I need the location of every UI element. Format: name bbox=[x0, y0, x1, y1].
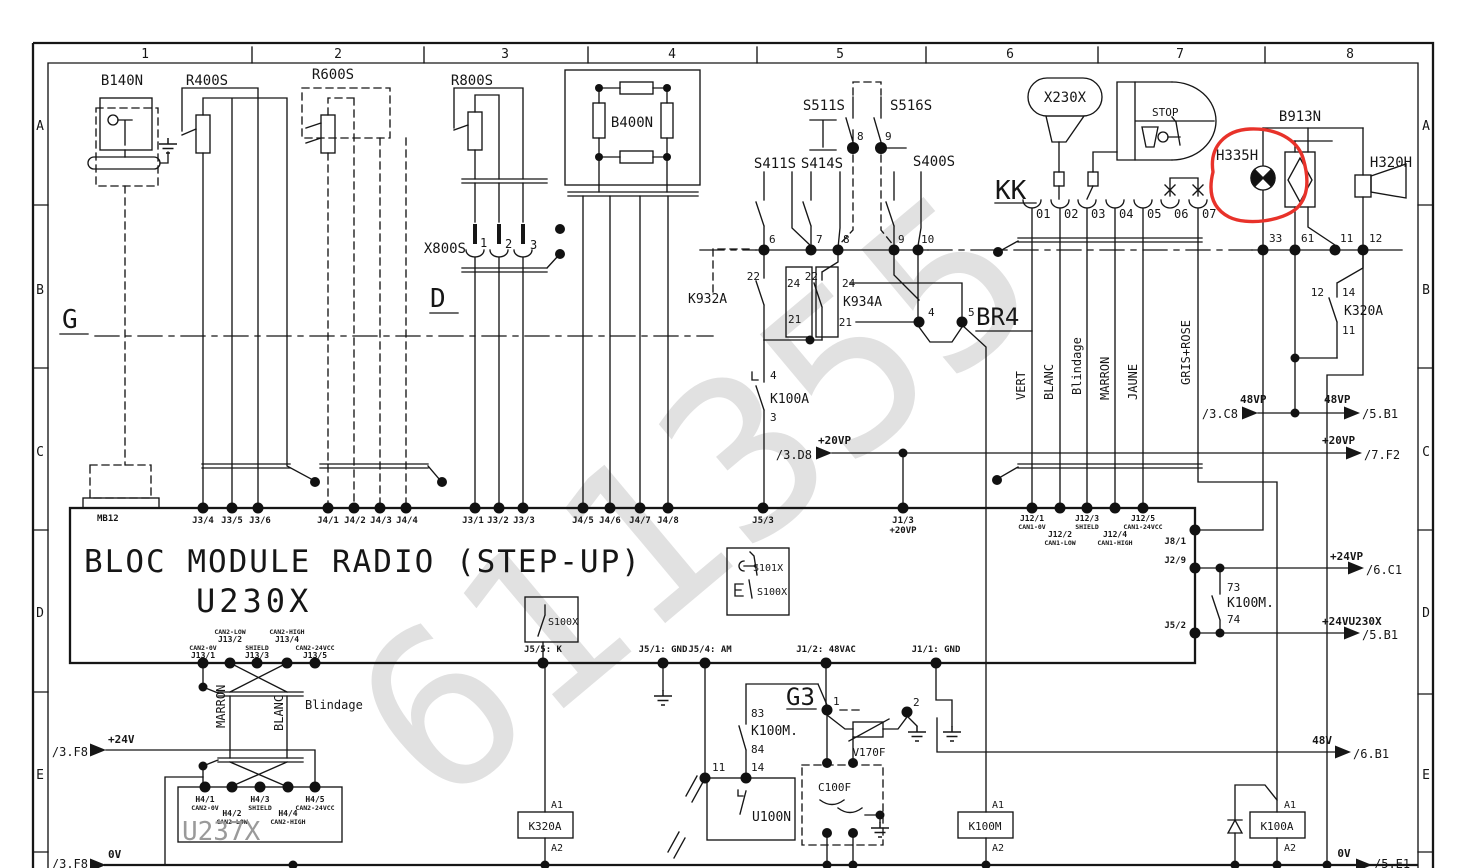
pin-14: 14 bbox=[1342, 286, 1356, 299]
pin-84: 84 bbox=[751, 743, 765, 756]
col-3: 3 bbox=[501, 47, 509, 62]
label-k100m-contact2: K100M. bbox=[751, 724, 798, 739]
pin-11: 11 bbox=[1340, 232, 1353, 245]
label-b140n: B140N bbox=[101, 73, 143, 89]
label-s414s: S414S bbox=[801, 156, 843, 172]
label-u237x: U237X bbox=[182, 817, 261, 847]
pin-j12-2: J12/2 bbox=[1048, 530, 1072, 539]
row-d-right: D bbox=[1422, 606, 1430, 621]
label-c100f: C100F bbox=[818, 781, 851, 794]
col-6: 6 bbox=[1006, 47, 1014, 62]
pin-h4-3-net: SHIELD bbox=[248, 804, 272, 812]
kk-pin-04: 04 bbox=[1119, 207, 1133, 221]
net-3d8: +20VP bbox=[818, 434, 851, 447]
x800s-pin1: 1 bbox=[480, 236, 487, 250]
ref-arrow bbox=[1356, 859, 1372, 868]
label-kk: KK bbox=[995, 176, 1027, 206]
pin-11b: 11 bbox=[1342, 324, 1355, 337]
net-5b1b: +24VU230X bbox=[1322, 615, 1382, 628]
ref-arrow bbox=[1346, 447, 1362, 460]
label-g: G bbox=[62, 305, 78, 335]
wire-jaune: JAUNE bbox=[1126, 364, 1140, 400]
pin-j13-2: J13/2 bbox=[218, 635, 242, 644]
module-ref: U230X bbox=[196, 582, 312, 620]
pin-73: 73 bbox=[1227, 581, 1240, 594]
pin-j5-4: J5/4: AM bbox=[688, 645, 732, 655]
row-d-left: D bbox=[36, 606, 44, 621]
label-k100m-coil: K100M bbox=[968, 820, 1001, 833]
label-br4: BR4 bbox=[976, 303, 1019, 331]
pin-2: 2 bbox=[913, 696, 920, 709]
ref-5b1b: /5.B1 bbox=[1362, 628, 1398, 642]
ref-3c8: /3.C8 bbox=[1202, 407, 1238, 421]
ref-arrow bbox=[1242, 407, 1258, 420]
pin-j12-4-net: CAN1-HIGH bbox=[1097, 539, 1132, 547]
pin-10: 10 bbox=[921, 233, 934, 246]
pin-j5-3: J5/3 bbox=[752, 516, 774, 526]
label-k100a-coil: K100A bbox=[1260, 820, 1293, 833]
pin-6: 6 bbox=[769, 233, 776, 246]
pin-a2b: A2 bbox=[992, 843, 1004, 854]
pin-j4-7: J4/7 bbox=[629, 516, 651, 526]
pin-14b: 14 bbox=[751, 761, 765, 774]
label-r600s: R600S bbox=[312, 67, 354, 83]
pin-7: 7 bbox=[816, 233, 823, 246]
pin-j12-5: J12/5 bbox=[1131, 514, 1155, 523]
pin-j12-4: J12/4 bbox=[1103, 530, 1127, 539]
pin-22a: 22 bbox=[747, 270, 760, 283]
pin-j3-5: J3/5 bbox=[221, 516, 243, 526]
pin-33: 33 bbox=[1269, 232, 1282, 245]
label-x800s: X800S bbox=[424, 241, 466, 257]
wire-blanc: BLANC bbox=[1042, 364, 1056, 400]
pin-21a: 21 bbox=[788, 313, 801, 326]
wiring-diagram: 611355 1 2 3 4 5 6 7 8 A B C D E A B C D… bbox=[0, 0, 1482, 868]
kk-pin-02: 02 bbox=[1064, 207, 1078, 221]
ref-3d8: /3.D8 bbox=[776, 448, 812, 462]
ref-arrow bbox=[1344, 627, 1360, 640]
label-s511s: S511S bbox=[803, 98, 845, 114]
pin-9: 9 bbox=[885, 130, 892, 143]
kk-pin-01: 01 bbox=[1036, 207, 1050, 221]
pin-j12-1: J12/1 bbox=[1020, 514, 1044, 523]
pin-12b: 12 bbox=[1311, 286, 1324, 299]
row-b-left: B bbox=[36, 283, 44, 298]
label-b400n: B400N bbox=[611, 115, 653, 131]
pin-a2a: A2 bbox=[551, 843, 563, 854]
col-7: 7 bbox=[1176, 47, 1184, 62]
pin-12: 12 bbox=[1369, 232, 1382, 245]
pin-j1-1: J1/1: GND bbox=[912, 645, 961, 655]
col-1: 1 bbox=[141, 47, 149, 62]
pin-74: 74 bbox=[1227, 613, 1241, 626]
pin-j4-3: J4/3 bbox=[370, 516, 392, 526]
pin-j12-2-net: CAN1-LOW bbox=[1044, 539, 1075, 547]
pin-j1-3-net: +20VP bbox=[889, 526, 917, 536]
label-r400s: R400S bbox=[186, 73, 228, 89]
label-x230x: X230X bbox=[1044, 90, 1087, 106]
pin-j12-1-net: CAN1-0V bbox=[1018, 523, 1045, 531]
ref-6b1: /6.B1 bbox=[1353, 747, 1389, 761]
label-blindage2: Blindage bbox=[305, 698, 363, 712]
pin-61: 61 bbox=[1301, 232, 1314, 245]
ground-icon bbox=[159, 138, 177, 153]
pin-j3-2: J3/2 bbox=[487, 516, 509, 526]
pin-a1c: A1 bbox=[1284, 800, 1296, 811]
ref-arrow bbox=[90, 859, 106, 868]
pin-24b: 24 bbox=[842, 277, 856, 290]
label-s411s: S411S bbox=[754, 156, 796, 172]
net-5b1: 48VP bbox=[1324, 393, 1351, 406]
kk-pin-03: 03 bbox=[1091, 207, 1105, 221]
kk-pin-05: 05 bbox=[1147, 207, 1161, 221]
pin-j1-2: J1/2: 48VAC bbox=[796, 645, 856, 655]
label-mb12: MB12 bbox=[97, 514, 119, 524]
stop-display bbox=[1087, 82, 1216, 199]
pin-5: 5 bbox=[968, 306, 975, 319]
x800s-pin3: 3 bbox=[530, 238, 537, 252]
ref-6c1: /6.C1 bbox=[1366, 563, 1402, 577]
ref-arrow bbox=[1344, 407, 1360, 420]
label-g3: G3 bbox=[786, 683, 815, 711]
pin-h4-1-net: CAN2-0V bbox=[191, 804, 218, 812]
row-c-right: C bbox=[1422, 445, 1430, 460]
wire-blindage: Blindage bbox=[1070, 337, 1084, 395]
pin-j12-3-net: SHIELD bbox=[1075, 523, 1099, 531]
label-k932a: K932A bbox=[688, 292, 727, 307]
label-k320a-contact: K320A bbox=[1344, 304, 1383, 319]
ground-icon bbox=[943, 726, 961, 741]
wire-gris-rose: GRIS+ROSE bbox=[1179, 320, 1193, 385]
label-k320a-coil: K320A bbox=[528, 820, 561, 833]
label-h335h: H335H bbox=[1216, 148, 1258, 164]
pin-j1-3: J1/3 bbox=[892, 516, 914, 526]
wire-marron: MARRON bbox=[1098, 357, 1112, 400]
label-u100n: U100N bbox=[752, 810, 791, 825]
label-s516s: S516S bbox=[890, 98, 932, 114]
net-3f8: +24V bbox=[108, 733, 135, 746]
label-s100x: S100X bbox=[757, 587, 787, 598]
pin-j4-4: J4/4 bbox=[396, 516, 418, 526]
ref-arrow bbox=[1348, 562, 1364, 575]
pin-j8-1: J8/1 bbox=[1164, 537, 1186, 547]
b140n-sensor bbox=[88, 98, 168, 465]
ref-3f8: /3.F8 bbox=[52, 745, 88, 759]
pin-j3-6: J3/6 bbox=[249, 516, 271, 526]
pin-h4-5-net: CAN2-24VCC bbox=[295, 804, 334, 812]
pin-h4-4-net: CAN2-HIGH bbox=[270, 818, 305, 826]
pin-83: 83 bbox=[751, 707, 764, 720]
kk-pin-07: 07 bbox=[1202, 207, 1216, 221]
pin-a2c: A2 bbox=[1284, 843, 1296, 854]
ref-7f2: /7.F2 bbox=[1364, 448, 1400, 462]
pin-j12-5-net: CAN1-24VCC bbox=[1123, 523, 1162, 531]
pin-3a: 3 bbox=[770, 411, 777, 424]
pin-j4-5: J4/5 bbox=[572, 516, 594, 526]
pin-11c: 11 bbox=[712, 761, 725, 774]
wire-vert: VERT bbox=[1014, 371, 1028, 400]
ref-5b1: /5.B1 bbox=[1362, 407, 1398, 421]
label-v170f: V170F bbox=[852, 746, 885, 759]
row-e-left: E bbox=[36, 768, 44, 783]
net-3c8: 48VP bbox=[1240, 393, 1267, 406]
wire-blanc2: BLANC bbox=[272, 695, 286, 731]
label-stop: STOP bbox=[1152, 106, 1179, 119]
col-4: 4 bbox=[668, 47, 676, 62]
pin-j4-8: J4/8 bbox=[657, 516, 679, 526]
ref-3f8b: /3.F8 bbox=[52, 857, 88, 868]
label-s101x: S101X bbox=[753, 563, 783, 574]
pin-h4-1: H4/1 bbox=[195, 795, 214, 804]
pin-j4-2: J4/2 bbox=[344, 516, 366, 526]
pin-j13-1: J13/1 bbox=[191, 651, 215, 660]
g-line bbox=[60, 313, 713, 336]
pin-a1a: A1 bbox=[551, 800, 563, 811]
label-r800s: R800S bbox=[451, 73, 493, 89]
col-8: 8 bbox=[1346, 47, 1354, 62]
net-6b1: 48V bbox=[1312, 734, 1332, 747]
schematic-page: 611355 1 2 3 4 5 6 7 8 A B C D E A B C D… bbox=[0, 0, 1482, 868]
pin-22b: 22 bbox=[805, 270, 818, 283]
row-a-right: A bbox=[1422, 119, 1430, 134]
pin-h4-3: H4/3 bbox=[250, 795, 269, 804]
pin-j12-3: J12/3 bbox=[1075, 514, 1099, 523]
pin-j5-2: J5/2 bbox=[1164, 621, 1186, 631]
net-7f2: +20VP bbox=[1322, 434, 1355, 447]
col-2: 2 bbox=[334, 47, 342, 62]
net-6c1: +24VP bbox=[1330, 550, 1363, 563]
pin-9b: 9 bbox=[898, 233, 905, 246]
pin-j4-6: J4/6 bbox=[599, 516, 621, 526]
label-d: D bbox=[430, 284, 446, 314]
label-s400s: S400S bbox=[913, 154, 955, 170]
pin-j5-5: J5/5: K bbox=[524, 645, 563, 655]
pin-j13-3: J13/3 bbox=[245, 651, 269, 660]
module-title: BLOC MODULE RADIO (STEP-UP) bbox=[84, 544, 642, 580]
pin-h4-5: H4/5 bbox=[305, 795, 324, 804]
pin-1: 1 bbox=[833, 695, 840, 708]
pin-j4-1: J4/1 bbox=[317, 516, 339, 526]
ref-5e1: /5.E1 bbox=[1374, 857, 1410, 868]
label-k100m-contact: K100M. bbox=[1227, 596, 1274, 611]
pin-8b: 8 bbox=[843, 233, 850, 246]
row-e-right: E bbox=[1422, 768, 1430, 783]
wire-marron2: MARRON bbox=[214, 685, 228, 728]
pin-j13-4: J13/4 bbox=[275, 635, 299, 644]
kk-connector bbox=[995, 178, 1277, 812]
pin-24a: 24 bbox=[787, 277, 801, 290]
pin-j13-5: J13/5 bbox=[303, 651, 327, 660]
r600s-potentiometer bbox=[302, 88, 440, 508]
label-k100a-contact: K100A bbox=[770, 392, 809, 407]
ground-icon bbox=[871, 822, 889, 837]
pin-j3-1: J3/1 bbox=[462, 516, 484, 526]
net-3f8b: 0V bbox=[108, 848, 122, 861]
kk-pin-06: 06 bbox=[1174, 207, 1188, 221]
pin-8: 8 bbox=[857, 130, 864, 143]
pin-j2-9: J2/9 bbox=[1164, 556, 1186, 566]
pin-j5-1: J5/1: GND bbox=[639, 645, 688, 655]
ref-arrow bbox=[1335, 746, 1351, 759]
pin-4: 4 bbox=[928, 306, 935, 319]
pin-j3-3: J3/3 bbox=[513, 516, 535, 526]
x800s-pin2: 2 bbox=[505, 237, 512, 251]
r400s-potentiometer bbox=[182, 88, 313, 508]
pin-j3-4: J3/4 bbox=[192, 516, 214, 526]
pin-21b: 21 bbox=[839, 316, 852, 329]
ref-arrow bbox=[90, 744, 106, 757]
pin-a1b: A1 bbox=[992, 800, 1004, 811]
ground-icon bbox=[908, 726, 926, 741]
col-5: 5 bbox=[836, 47, 844, 62]
label-s100x-b: S100X bbox=[548, 617, 578, 628]
row-b-right: B bbox=[1422, 283, 1430, 298]
label-b913n: B913N bbox=[1279, 109, 1321, 125]
label-h320h: H320H bbox=[1370, 155, 1412, 171]
net-5e1: 0V bbox=[1337, 847, 1351, 860]
label-k934a: K934A bbox=[843, 295, 882, 310]
row-a-left: A bbox=[36, 119, 44, 134]
row-c-left: C bbox=[36, 445, 44, 460]
pin-4a: 4 bbox=[770, 369, 777, 382]
r800s-potentiometer bbox=[454, 88, 547, 222]
